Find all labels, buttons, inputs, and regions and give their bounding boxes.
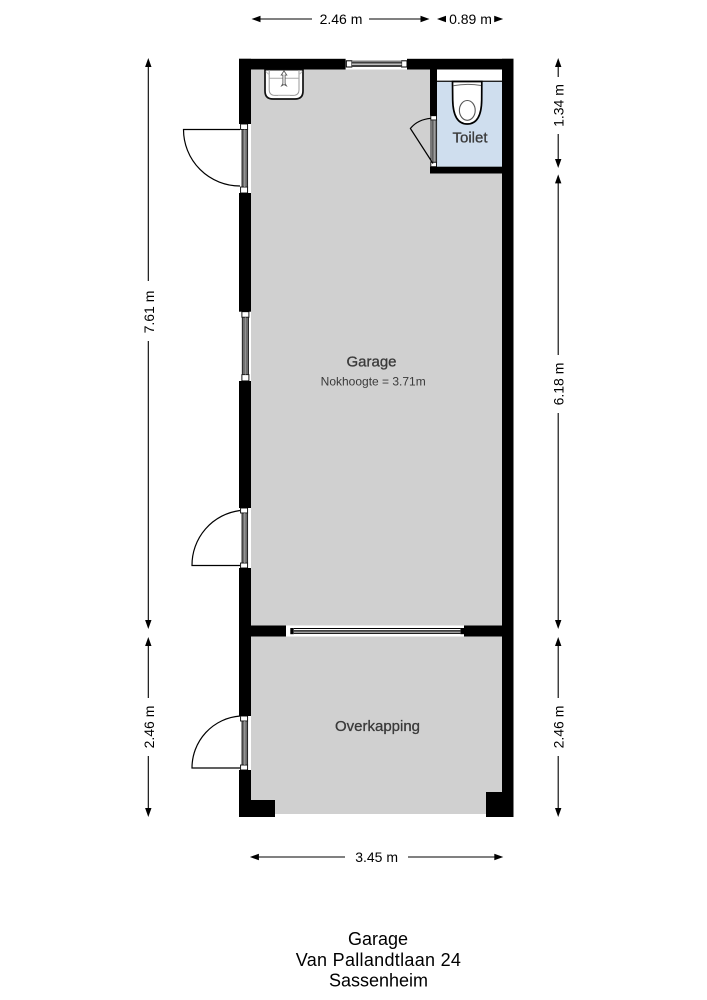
svg-text:2.46 m: 2.46 m [320, 11, 363, 27]
svg-text:1.34 m: 1.34 m [550, 84, 566, 127]
svg-text:3.45 m: 3.45 m [355, 849, 398, 865]
svg-text:2.46 m: 2.46 m [550, 706, 566, 749]
svg-text:Garage: Garage [346, 354, 396, 371]
svg-text:2.46 m: 2.46 m [141, 706, 157, 749]
svg-text:7.61 m: 7.61 m [141, 291, 157, 334]
svg-text:Toilet: Toilet [452, 130, 488, 147]
svg-text:Overkapping: Overkapping [335, 718, 420, 735]
svg-text:6.18 m: 6.18 m [550, 363, 566, 406]
svg-text:Van Pallandtlaan 24: Van Pallandtlaan 24 [296, 950, 462, 970]
svg-text:Garage: Garage [348, 929, 408, 949]
svg-text:Nokhoogte = 3.71m: Nokhoogte = 3.71m [321, 375, 426, 389]
svg-text:0.89 m: 0.89 m [449, 11, 492, 27]
svg-text:Sassenheim: Sassenheim [329, 971, 428, 991]
